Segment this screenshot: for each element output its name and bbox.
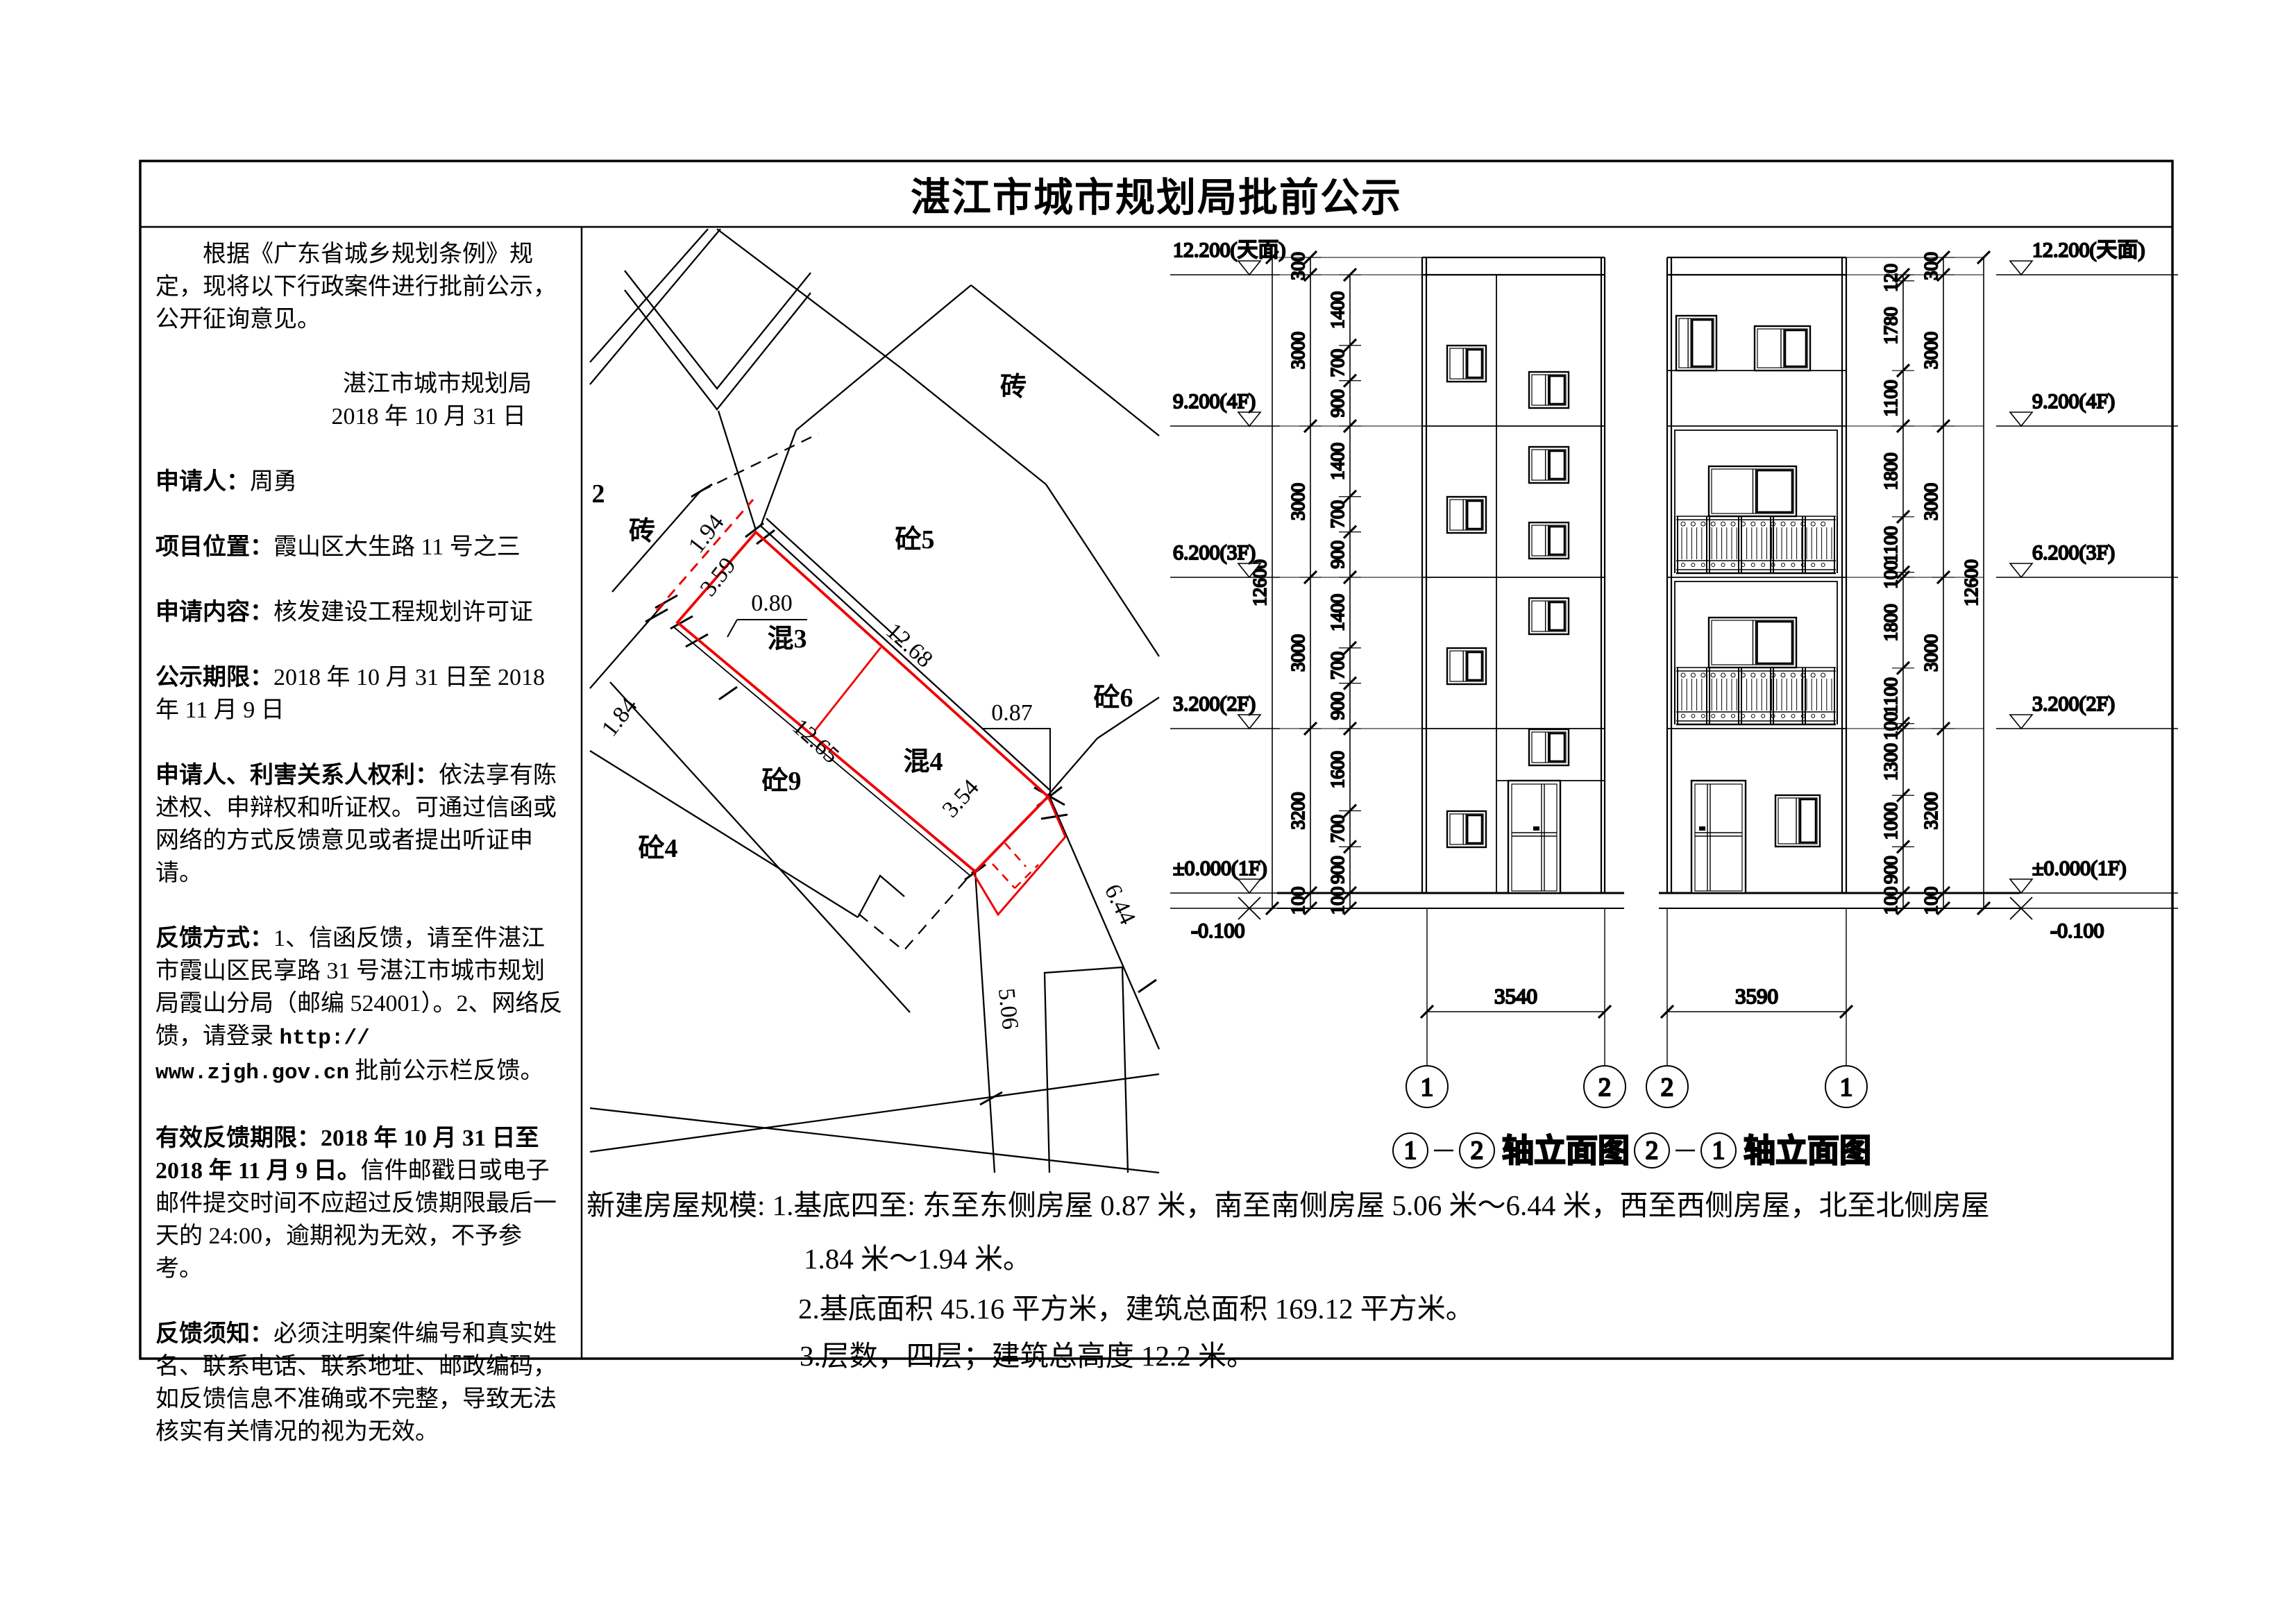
axis-number: 2 xyxy=(1661,1073,1674,1102)
dimension-label: 1100 xyxy=(1880,677,1901,714)
railing-ornament xyxy=(1781,673,1785,677)
railing-ornament xyxy=(1681,673,1685,677)
site-dimension-label: 3.54 xyxy=(938,774,984,822)
axis-number: 1 xyxy=(1421,1073,1434,1102)
railing-ornament xyxy=(1761,522,1765,526)
railing-ornament xyxy=(1731,673,1735,677)
level-label: -0.100 xyxy=(2050,919,2104,942)
site-dimension-label: 0.87 xyxy=(991,700,1033,726)
railing-ornament xyxy=(1751,522,1755,526)
railing-ornament xyxy=(1751,715,1755,718)
parcel-label: 砼5 xyxy=(895,525,934,554)
level-triangle-marker xyxy=(2010,563,2032,577)
railing-ornament xyxy=(1691,563,1695,567)
level-triangle-marker xyxy=(2010,715,2032,729)
site-dimension-label: 1.84 xyxy=(597,693,643,742)
railing-ornament xyxy=(1791,563,1795,567)
railing-ornament xyxy=(1791,673,1795,677)
level-label: 9.200(4F) xyxy=(1173,390,1256,413)
dimension-label: 300 xyxy=(1288,252,1308,280)
level-triangle-marker xyxy=(1238,715,1260,729)
dimension-label: 3000 xyxy=(1921,634,1941,672)
window xyxy=(1676,316,1716,371)
notice-sheet: 湛江市城市规划局批前公示 根据《广东省城乡规划条例》规定，现将以下行政案件进行批… xyxy=(0,0,2296,1623)
level-triangle-marker xyxy=(1238,412,1260,426)
railing-ornament xyxy=(1762,715,1765,718)
parcel-label: 砼6 xyxy=(1093,683,1133,713)
railing-ornament xyxy=(1691,715,1695,718)
railing-ornament xyxy=(1821,522,1825,526)
railing-ornament xyxy=(1701,715,1705,718)
parcel-label: 砼4 xyxy=(638,834,677,863)
table-borders xyxy=(140,161,2172,1359)
railing-ornament xyxy=(1811,673,1815,677)
door xyxy=(1691,781,1746,893)
dimension-label: 1300 xyxy=(1880,743,1901,781)
dimension-label: 1780 xyxy=(1880,307,1901,344)
railing-ornament xyxy=(1721,522,1725,526)
dimension-label: 1100 xyxy=(1880,526,1901,563)
railing-ornament xyxy=(1721,715,1725,718)
caption-axis-number: 1 xyxy=(1712,1137,1725,1165)
dimension-label: 700 xyxy=(1327,349,1348,377)
dimension-label: 100 xyxy=(1327,887,1348,915)
railing-ornament xyxy=(1721,673,1725,677)
dimension-label: 900 xyxy=(1327,856,1348,884)
caption-axis-number: 2 xyxy=(1471,1137,1484,1165)
railing-ornament xyxy=(1791,522,1795,526)
level-label: 12.200(天面) xyxy=(1173,239,1285,262)
elevation-caption: 轴立面图 xyxy=(1744,1133,1871,1169)
parcel-label: 砼9 xyxy=(761,767,801,796)
level-triangle-marker xyxy=(1238,879,1260,893)
dimension-label: 100 xyxy=(1880,561,1901,589)
railing-ornament xyxy=(1701,563,1705,567)
axis-number: 2 xyxy=(1598,1073,1612,1102)
railing-ornament xyxy=(1681,522,1685,526)
dimension-label: 3200 xyxy=(1921,792,1941,830)
site-dimension-label: 5.06 xyxy=(993,987,1023,1030)
dimension-label: 100 xyxy=(1921,887,1941,915)
span-dimension-label: 3540 xyxy=(1494,984,1537,1008)
level-triangle-marker xyxy=(2010,412,2032,426)
site-dimension-label: 1.94 xyxy=(684,510,729,559)
railing-ornament xyxy=(1781,522,1785,526)
parcel-label: 混4 xyxy=(903,747,943,776)
railing-ornament xyxy=(1821,715,1825,718)
dimension-label: 300 xyxy=(1921,252,1941,280)
railing-ornament xyxy=(1782,563,1785,567)
dimension-label: 900 xyxy=(1880,856,1901,884)
railing-ornament xyxy=(1701,673,1705,677)
parcel-label: 砖 xyxy=(1000,373,1027,402)
window xyxy=(1775,795,1820,847)
railing-ornament xyxy=(1712,563,1715,567)
railing-ornament xyxy=(1691,673,1695,677)
drawing-canvas: 砖砖砼5砼6混3混4砼9砼420.800.8712.6812.653.546.4… xyxy=(0,0,2296,1623)
elevation-caption: 轴立面图 xyxy=(1502,1133,1630,1169)
dimension-label: 1800 xyxy=(1880,604,1901,641)
railing-ornament xyxy=(1721,563,1725,567)
railing-ornament xyxy=(1812,715,1815,718)
dimension-label: 100 xyxy=(1288,887,1308,915)
level-label: -0.100 xyxy=(1191,919,1245,942)
level-label: 3.200(2F) xyxy=(1173,692,1256,715)
dimension-label: 1400 xyxy=(1327,443,1348,480)
railing-ornament xyxy=(1761,673,1765,677)
railing-ornament xyxy=(1711,522,1715,526)
railing-ornament xyxy=(1732,715,1735,718)
dimension-label: 700 xyxy=(1327,652,1348,680)
dimension-label: 700 xyxy=(1327,815,1348,843)
dimension-label: 900 xyxy=(1327,692,1348,720)
railing-ornament xyxy=(1712,715,1715,718)
dimension-label: 1800 xyxy=(1880,452,1901,490)
railing-ornament xyxy=(1782,715,1785,718)
dimension-label: 700 xyxy=(1327,500,1348,529)
dimension-label: 3000 xyxy=(1921,332,1941,369)
door xyxy=(1508,781,1560,893)
railing-ornament xyxy=(1682,563,1685,567)
dimension-label: 3200 xyxy=(1288,792,1308,830)
door-handle xyxy=(1699,826,1705,831)
railing-ornament xyxy=(1751,673,1755,677)
railing-ornament xyxy=(1751,563,1755,567)
axis-number: 1 xyxy=(1840,1073,1853,1102)
dimension-label: 1100 xyxy=(1880,380,1901,417)
dimension-label: 3000 xyxy=(1288,634,1308,672)
railing-ornament xyxy=(1791,715,1795,718)
site-plan-labels: 砖砖砼5砼6混3混4砼9砼420.800.8712.6812.653.546.4… xyxy=(592,373,1141,1030)
parcel-label: 混3 xyxy=(767,624,807,654)
site-dimension-label: 6.44 xyxy=(1099,881,1140,929)
dimension-label: 1400 xyxy=(1327,291,1348,329)
level-label: 6.200(3F) xyxy=(2032,541,2115,564)
parcel-label: 砖 xyxy=(629,517,655,546)
railing-ornament xyxy=(1711,673,1715,677)
dimension-label: 1000 xyxy=(1880,802,1901,840)
railing-ornament xyxy=(1821,563,1825,567)
railing-ornament xyxy=(1812,563,1815,567)
span-dimension-label: 3590 xyxy=(1735,984,1778,1008)
window xyxy=(1755,326,1810,371)
level-label: ±0.000(1F) xyxy=(1173,857,1267,880)
level-label: 9.200(4F) xyxy=(2032,390,2115,413)
door-handle xyxy=(1533,826,1539,831)
dimension-label: 120 xyxy=(1880,264,1901,292)
dimension-label: 900 xyxy=(1327,541,1348,569)
overall-dimension-label: 12600 xyxy=(1961,559,1982,606)
dimension-label: 100 xyxy=(1880,887,1901,915)
elevation-generated: 1260030030003000300032001001400700900140… xyxy=(1170,239,2178,1169)
site-dimension-label: 12.68 xyxy=(881,618,938,673)
level-triangle-marker xyxy=(2010,261,2032,275)
level-label: 6.200(3F) xyxy=(1173,541,1256,564)
dimension-label: 3000 xyxy=(1288,332,1308,369)
dimension-label: 100 xyxy=(1880,712,1901,740)
caption-axis-number: 1 xyxy=(1404,1137,1417,1165)
site-plan: 砖砖砼5砼6混3混4砼9砼420.800.8712.6812.653.546.4… xyxy=(590,229,1159,1173)
railing-ornament xyxy=(1731,522,1735,526)
railing-ornament xyxy=(1691,522,1695,526)
railing-ornament xyxy=(1762,563,1765,567)
elevation-drawings: 1260030030003000300032001001400700900140… xyxy=(1170,239,2178,1169)
dimension-label: 1400 xyxy=(1327,594,1348,631)
level-label: 3.200(2F) xyxy=(2032,692,2115,715)
dimension-label: 3000 xyxy=(1288,483,1308,520)
level-label: ±0.000(1F) xyxy=(2032,857,2127,880)
dimension-label: 1600 xyxy=(1327,751,1348,788)
dimension-label: 900 xyxy=(1327,389,1348,418)
site-dimension-label: 0.80 xyxy=(751,590,793,616)
level-label: 12.200(天面) xyxy=(2032,239,2145,262)
level-triangle-marker xyxy=(2010,879,2032,893)
railing-ornament xyxy=(1811,522,1815,526)
dimension-label: 3000 xyxy=(1921,483,1941,520)
railing-ornament xyxy=(1701,522,1705,526)
parcel-label: 2 xyxy=(592,479,605,509)
railing-ornament xyxy=(1821,673,1825,677)
level-triangle-marker xyxy=(1238,261,1260,275)
caption-axis-number: 2 xyxy=(1646,1137,1659,1165)
railing-ornament xyxy=(1732,563,1735,567)
railing-ornament xyxy=(1682,715,1685,718)
